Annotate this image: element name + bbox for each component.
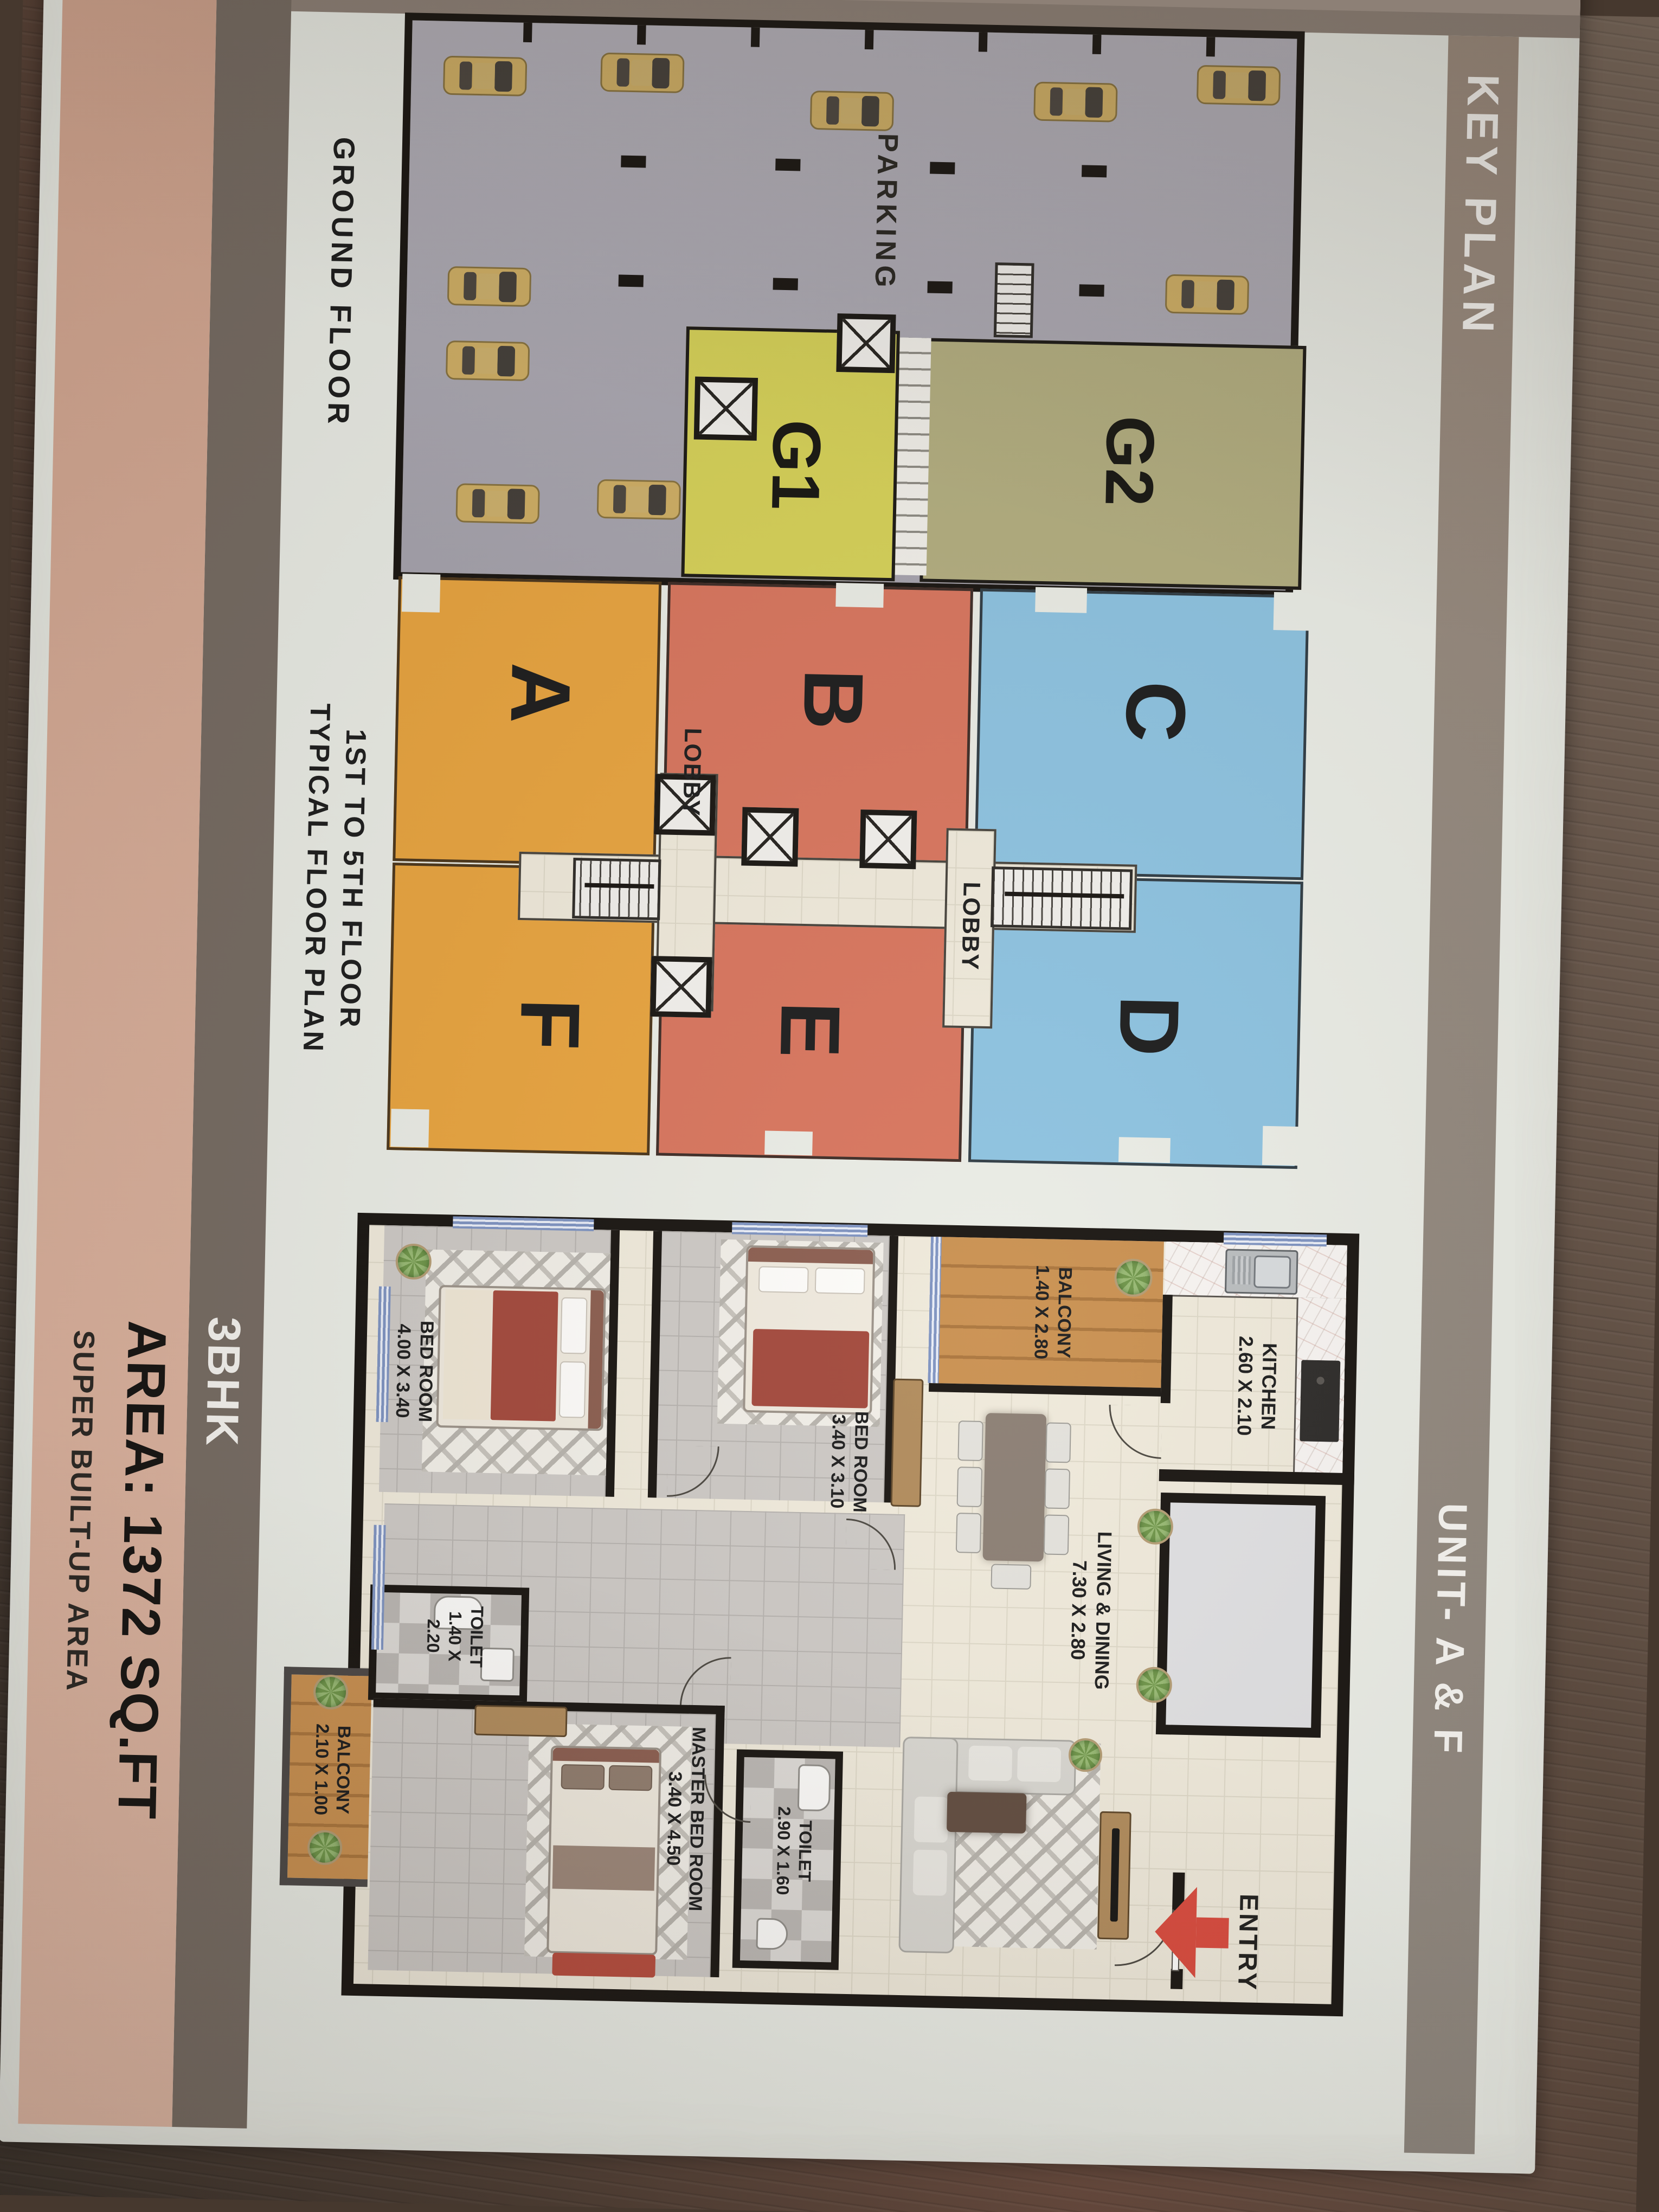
car-icon: [1197, 65, 1281, 106]
chair-icon: [957, 1420, 983, 1461]
car-icon: [600, 53, 684, 93]
sofa-cushion: [914, 1797, 949, 1843]
stairs-icon: [572, 858, 661, 920]
sofa-cushion: [1017, 1747, 1061, 1783]
sofa-icon: [898, 1737, 958, 1953]
sofa-cushion: [968, 1746, 1012, 1782]
living-dims: 7.30 X 2.80: [1065, 1517, 1092, 1702]
parking-stall-stub: [979, 32, 988, 52]
coffee-table-icon: [947, 1792, 1027, 1834]
column-marker: [619, 275, 644, 287]
parking-stall-stub: [751, 28, 760, 47]
bed-icon: [546, 1745, 661, 1955]
chair-icon: [1045, 1468, 1071, 1509]
unit-c-label: C: [1105, 624, 1206, 800]
car-icon: [443, 56, 527, 97]
chair-icon: [956, 1513, 982, 1553]
car-icon: [810, 91, 894, 131]
unit-f-label: F: [500, 936, 600, 1112]
area-label: AREA: 1372 SQ.FT: [108, 1320, 175, 1821]
bedroom2-dims: 3.40 X 3.10: [826, 1401, 850, 1521]
car-icon: [1033, 81, 1117, 122]
unit-d-label: D: [1099, 938, 1199, 1114]
dining-table-icon: [983, 1413, 1047, 1561]
parking-stall-stub: [1206, 37, 1216, 56]
unit-g2-label: G2: [1088, 342, 1171, 581]
balcony1-dims: 1.40 X 2.80: [1030, 1244, 1053, 1380]
car-icon: [447, 266, 531, 307]
living-label: LIVING & DINING: [1090, 1518, 1116, 1703]
parking-stall-stub: [523, 23, 532, 42]
column-marker: [1079, 284, 1104, 297]
lift-shaft-icon: [741, 807, 799, 867]
column-marker: [775, 159, 800, 171]
toilet1-dims-b: 2.20: [422, 1586, 444, 1687]
key-plan-title: KEY PLAN: [1454, 74, 1506, 338]
car-icon: [597, 479, 681, 520]
bhk-label: 3BHK: [198, 1316, 248, 1448]
toilet2-dims: 2.90 X 1.60: [771, 1764, 795, 1938]
balcony2-label: BALCONY: [331, 1686, 355, 1854]
bed-icon: [743, 1245, 875, 1415]
facade-notch: [1274, 592, 1312, 631]
chair-icon: [1045, 1423, 1071, 1463]
parking-stall-stub: [637, 25, 646, 44]
column-marker: [621, 156, 646, 168]
kitchen-dims: 2.60 X 2.10: [1232, 1304, 1258, 1468]
g1-entrance-steps: [895, 337, 931, 575]
lobby-label-1: LOBBY: [955, 828, 986, 1024]
unit-a-label: A: [490, 606, 590, 781]
bedroom1-label: BED ROOM: [414, 1306, 438, 1437]
column-marker: [930, 162, 955, 175]
stairs-icon: [994, 262, 1034, 338]
facade-notch: [835, 583, 884, 608]
chair-icon: [991, 1564, 1031, 1590]
column-marker: [773, 278, 798, 290]
bed-bench-icon: [552, 1953, 655, 1978]
facade-notch: [402, 574, 440, 612]
photo-background: KEY PLAN UNIT- A & F G2 G1 PARKING GROUN…: [0, 0, 1659, 2212]
column-marker: [1082, 165, 1107, 177]
kitchen-label: KITCHEN: [1256, 1305, 1282, 1468]
balcony2-dims: 2.10 X 1.00: [310, 1685, 333, 1854]
car-icon: [1165, 274, 1249, 315]
lift-shaft-icon: [694, 377, 758, 441]
column-marker: [927, 281, 952, 293]
toilet2-label: TOILET: [793, 1764, 817, 1938]
balcony1-label: BALCONY: [1052, 1245, 1076, 1381]
entry-arrow-icon: [1636, 17, 1659, 2212]
area-note: SUPER BUILT-UP AREA: [61, 1330, 99, 1693]
chair-icon: [957, 1467, 983, 1507]
dresser-icon: [891, 1379, 924, 1507]
bedroom1-dims: 4.00 X 3.40: [391, 1306, 415, 1436]
unit-title: UNIT- A & F: [1426, 1502, 1474, 1757]
stove-icon: [1300, 1360, 1340, 1442]
chair-icon: [1044, 1514, 1070, 1555]
entry-label: ENTRY: [1232, 1880, 1262, 2005]
unit-g1-label: G1: [755, 345, 837, 584]
toilet1-dims-a: 1.40 X: [443, 1586, 466, 1687]
stairs-icon: [991, 866, 1133, 930]
unit-e-label: E: [760, 942, 860, 1117]
window-band: [1224, 1232, 1327, 1246]
car-icon: [455, 483, 539, 524]
facade-notch: [764, 1131, 813, 1156]
facade-notch: [1262, 1126, 1301, 1166]
bed-icon: [436, 1285, 606, 1431]
facade-notch: [1118, 1137, 1171, 1163]
sofa-cushion: [913, 1850, 948, 1896]
unit-b-label: B: [783, 612, 883, 787]
lift-shaft-icon: [650, 956, 712, 1018]
lobby-label-2: LOBBY: [677, 702, 706, 843]
parking-stall-stub: [865, 30, 874, 49]
sink-icon: [1225, 1249, 1298, 1295]
facade-notch: [390, 1109, 429, 1147]
car-icon: [446, 340, 530, 381]
foyer-room: [1156, 1493, 1326, 1738]
lift-shaft-icon: [859, 809, 917, 869]
parking-stall-stub: [1092, 35, 1102, 54]
bedroom2-label: BED ROOM: [848, 1402, 872, 1522]
wardrobe-icon: [474, 1705, 568, 1738]
toilet1-label: TOILET: [465, 1586, 487, 1687]
facade-notch: [1035, 587, 1087, 613]
